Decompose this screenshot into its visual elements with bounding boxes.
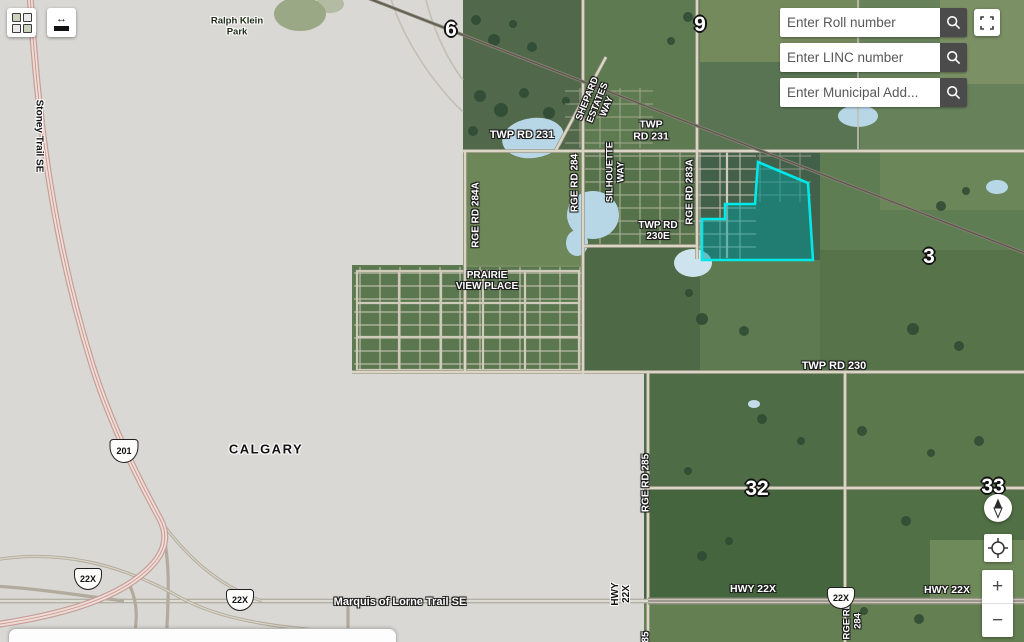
search-icon xyxy=(946,85,961,100)
interchange-ramps xyxy=(0,519,348,642)
zoom-controls: + − xyxy=(982,570,1013,637)
compass-needle-icon xyxy=(984,494,1012,522)
compass-button[interactable] xyxy=(984,494,1012,522)
municipal-search-button[interactable] xyxy=(940,78,967,107)
basemap-gallery-button[interactable] xyxy=(7,8,36,37)
measure-button[interactable]: ↔ xyxy=(47,8,76,37)
fullscreen-icon xyxy=(980,16,994,30)
fullscreen-button[interactable] xyxy=(974,9,1000,36)
zoom-in-button[interactable]: + xyxy=(982,570,1013,603)
linc-number-search xyxy=(780,43,967,72)
linc-number-input[interactable] xyxy=(780,43,940,72)
municipal-address-input[interactable] xyxy=(780,78,940,107)
map-viewport[interactable]: Ralph Klein Park Stoney Trail SE CALGARY… xyxy=(0,0,1024,642)
bottom-panel xyxy=(8,628,397,642)
roll-number-input[interactable] xyxy=(780,8,940,37)
roll-number-search xyxy=(780,8,967,37)
linc-search-button[interactable] xyxy=(940,43,967,72)
basemap-gallery-icon xyxy=(12,13,32,33)
search-icon xyxy=(946,15,961,30)
search-icon xyxy=(946,50,961,65)
locate-button[interactable] xyxy=(984,534,1012,562)
stoney-trail-road xyxy=(0,0,165,625)
ralph-klein-park-area xyxy=(274,0,344,31)
municipal-address-search xyxy=(780,78,967,107)
measure-bar-icon xyxy=(54,26,69,31)
zoom-out-button[interactable]: − xyxy=(982,604,1013,637)
measure-arrows-icon: ↔ xyxy=(56,14,67,25)
locate-icon xyxy=(984,534,1012,562)
roll-search-button[interactable] xyxy=(940,8,967,37)
